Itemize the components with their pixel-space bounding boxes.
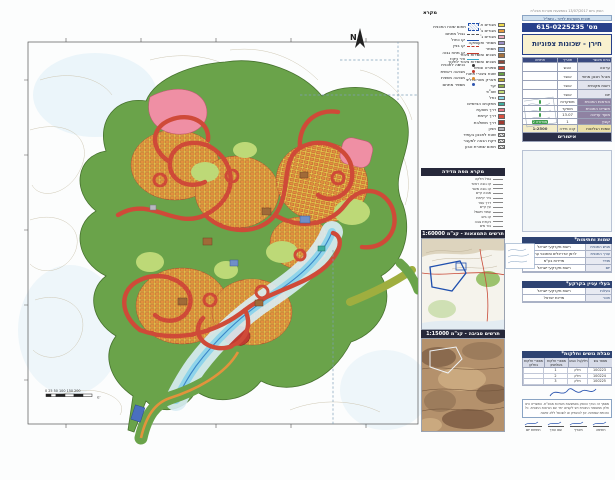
legend-symbol-icon xyxy=(467,53,479,54)
survey-symbol-icon xyxy=(493,193,503,194)
approval-row-status: אושר xyxy=(557,72,577,80)
signature-row-label: מודד xyxy=(585,258,611,264)
approval-row-status: אושר xyxy=(557,90,577,98)
water-wash-3 xyxy=(340,350,430,430)
stakeholder-row-value: מדינת ישראל xyxy=(523,295,585,301)
legend-symbol-icon xyxy=(467,70,479,73)
legend-item-label: מבואה משנית xyxy=(441,76,465,80)
footer-signature-label: תאריך xyxy=(567,428,590,432)
parcels-panel: טבלת גושים וחלקות* מספר גוש חלק/כל הגוש … xyxy=(522,351,612,386)
col-full-parcels: מספרי חלקות בשלמותן xyxy=(544,358,568,367)
legend-item-label: נחל xyxy=(489,96,496,100)
civic-blue-block-2 xyxy=(230,260,238,266)
survey-symbol-icon xyxy=(493,226,503,227)
civic-blue-block xyxy=(300,216,310,223)
legend-symbol-icon xyxy=(467,77,479,80)
legend-symbol-icon xyxy=(467,59,479,60)
approval-row-label: רשות מקומית xyxy=(577,81,611,89)
col-signature: חתימה xyxy=(523,58,557,62)
survey-item-label: קו גובה משני xyxy=(472,187,491,191)
legend-item-label: מספר מתחם xyxy=(443,83,465,87)
parcel-partial xyxy=(523,374,543,379)
deposit-row-value: 13.07 xyxy=(557,112,577,118)
legend-symbol-icon xyxy=(467,46,479,47)
approval-row: מנהל תכנון מחוזי אושר xyxy=(523,72,611,81)
legend-item-label: תחום שטח התכנית xyxy=(433,25,466,29)
legend-color-chip xyxy=(498,127,505,131)
legend-color-chip xyxy=(498,120,505,124)
survey-symbol-icon xyxy=(493,207,503,208)
legend-symbol-icon xyxy=(467,34,479,35)
legend-symbol-icon xyxy=(467,40,479,41)
legend-item-label: ציר ניקוז xyxy=(450,57,465,61)
footer-signature-label: חתימה xyxy=(590,428,613,432)
signature-row-label: עורך התכנית xyxy=(585,251,611,257)
orientation-map xyxy=(421,238,505,330)
approval-row-status: הוגש xyxy=(557,63,577,71)
sheets-label: שמות הגליונות xyxy=(577,125,611,132)
legend-color-chip xyxy=(498,47,505,51)
stakeholder-row-label: חוכר xyxy=(585,295,611,301)
legend-item-label: דרך מוצעת xyxy=(476,108,496,112)
footer-signature-label: חתימת יזם xyxy=(522,428,545,432)
survey-legend-header: מקרא מפת מדידה xyxy=(421,168,505,176)
svg-text:מ': מ' xyxy=(97,396,100,400)
parcel-part: חלק xyxy=(567,379,587,384)
survey-symbol-icon xyxy=(493,202,503,203)
legend-item-label: תחום שמורת טבע xyxy=(465,145,496,149)
survey-symbol-icon xyxy=(493,216,503,217)
signature-row: מודד מדידות בע"מ xyxy=(523,258,611,265)
survey-item-label: מבנה קיים xyxy=(476,191,491,195)
legend-item-label: מגורים ג' xyxy=(480,35,496,39)
footer-signature-cell: תאריך xyxy=(567,419,590,432)
legend-color-chip xyxy=(498,96,505,100)
survey-item-label: גדר קיימת xyxy=(476,196,491,200)
legend-symbol-icon xyxy=(467,83,479,86)
orientation-diagram-panel: תרשים התמצאות - קנ"מ 1:60000 xyxy=(421,230,505,330)
approval-row-label: יזם xyxy=(577,90,611,98)
plan-name-box: חירן - שכונות צפוניות xyxy=(522,34,612,55)
col-block: מספר גוש xyxy=(588,358,612,367)
deposit-row-label: הוראות התכנית xyxy=(577,99,611,105)
legend-item: תחום שמורת טבע xyxy=(457,144,505,150)
signature-row-label: יזם xyxy=(585,265,611,271)
survey-symbol-icon xyxy=(493,188,503,189)
scale-label: קנה מידה xyxy=(557,125,577,132)
approval-row: ערוכה הוגש xyxy=(523,63,611,72)
parcel-block: 100224 xyxy=(587,374,611,379)
approvals-bar: אישורים xyxy=(523,133,611,141)
legend-title: מקרא xyxy=(421,10,505,16)
legend-panel: מקרא מגורים א' מגורים ב' מגורים ג' מסחר … xyxy=(421,10,505,16)
stakeholder-row-value: רשות מקרקעי ישראל xyxy=(523,288,585,294)
legend-color-chip xyxy=(498,133,505,137)
signature-row: עורך התכנית לרמן אדריכלים ומתכנני ערים xyxy=(523,251,611,258)
legend-item-label: קו מתח גבוה xyxy=(442,51,465,55)
legend-color-chip xyxy=(498,114,505,118)
legend-color-chip xyxy=(498,72,505,76)
legend-item-label: יער xyxy=(490,84,496,88)
stakeholder-row: בעלות רשות מקרקעי ישראל xyxy=(523,288,611,295)
legend-item-label: גבול מתחם xyxy=(445,32,465,36)
col-part: חלק/כל הגוש xyxy=(568,358,588,367)
survey-symbol-icon xyxy=(493,212,503,213)
approval-row-label: מנהל תכנון מחוזי xyxy=(577,72,611,80)
legend-item-label: מבואה ראשית xyxy=(440,70,465,74)
legend-item-label: מסחר xyxy=(486,47,496,51)
signatures-header: שמות וחתימות* xyxy=(522,237,612,244)
deposit-row-value: מופקדות xyxy=(557,99,577,105)
plan-boundary-icon xyxy=(468,23,479,31)
footer-signature-cell: חתימת יזם xyxy=(522,419,545,432)
plan-map: N 0 25 50 100 150 200 מ' xyxy=(0,0,430,480)
parcel-full: 2 xyxy=(543,374,567,379)
deposit-row-value: 1 xyxy=(557,119,577,125)
survey-item-label: קו גובה ראשי xyxy=(472,182,491,186)
parcel-block: 100223 xyxy=(587,368,611,373)
legend-item-label: דרך משולבת xyxy=(474,121,496,125)
orientation-header: תרשים התמצאות - קנ"מ 1:60000 xyxy=(421,230,505,238)
footer-signature-cell: שם עורך xyxy=(545,419,568,432)
survey-item-label: בור מים xyxy=(480,224,491,228)
parcels-header: טבלת גושים וחלקות* xyxy=(522,351,612,358)
legend-item-label: קו כחול xyxy=(451,38,465,42)
col-partial-parcels: מספרי חלקות בחלקן xyxy=(522,358,544,367)
footer-signature-row: חתימה תאריך שם עורך חתימת יזם xyxy=(522,419,612,432)
footer-signature-cell: חתימה xyxy=(590,419,613,432)
environment-aerial-map xyxy=(421,338,505,432)
legend-color-chip xyxy=(498,102,505,106)
survey-item-label: קו ביוב xyxy=(481,215,491,219)
print-meta-line: הופק ביום 13/07/2017 באמצעות מערכת מבא"ת xyxy=(522,9,612,13)
survey-item-label: גבול חלקה xyxy=(475,177,491,181)
legend-color-chip xyxy=(498,78,505,82)
stakeholder-row: חוכר מדינת ישראל xyxy=(523,295,611,302)
legend-color-chip xyxy=(498,29,505,33)
environment-header: תרשים סביבה - קנ"מ 1:15000 xyxy=(421,330,505,338)
parcel-full: 1 xyxy=(543,368,567,373)
legend-item-label: שצ"פ xyxy=(486,90,496,94)
legend-color-chip xyxy=(498,35,505,39)
deposit-row-value: מופקד xyxy=(557,106,577,112)
approval-row-signature-space xyxy=(523,72,557,80)
approvals-empty-box xyxy=(522,150,612,232)
deposit-row-label: קובץ xyxy=(577,119,611,125)
parcel-full: 3 xyxy=(543,379,567,384)
signatures-panel: שמות וחתימות* מגיש התכנית רשות מקרקעי יש… xyxy=(522,237,612,273)
stakeholder-row-label: בעלות xyxy=(585,288,611,294)
engineering-block xyxy=(318,246,325,251)
environment-diagram-panel: תרשים סביבה - קנ"מ 1:15000 xyxy=(421,330,505,432)
legend-item-label: מתקנים הנדסיים xyxy=(467,102,496,106)
deposit-row-label: מועד עריכה xyxy=(577,112,611,118)
legend-color-chip xyxy=(498,139,505,143)
signature-row: מגיש התכנית רשות מקרקעי ישראל xyxy=(523,244,611,251)
legend-item-label: שטח לתכנון בעתיד xyxy=(463,133,496,137)
north-arrow: N xyxy=(350,28,365,48)
survey-item-label: נקודת גובה xyxy=(475,220,491,224)
svg-text:0 25 50 100 150 20: 0 25 50 100 150 200 xyxy=(45,389,81,393)
handwritten-signature xyxy=(548,385,598,399)
legend-item-label: קו בניין xyxy=(453,44,465,48)
legend-item-label: חניון xyxy=(489,127,496,131)
signature-row: יזם רשות מקרקעי ישראל xyxy=(523,265,611,272)
scanned-plan-sheet: { "doc": { "meta_line": "הופק ביום 13/07… xyxy=(0,0,615,480)
stamp-scribble xyxy=(524,85,560,133)
parcel-partial xyxy=(523,368,543,373)
deposit-row-label: תשריט התכנית xyxy=(577,106,611,112)
legend-symbols: תחום שטח התכנית גבול מתחם קו כחול קו בני… xyxy=(421,24,479,88)
approval-row-signature-space xyxy=(523,63,557,71)
survey-item-label: עמוד חשמל xyxy=(474,210,491,214)
plan-type-strip: תכנית מועדפת לדיור - ותמ"ל xyxy=(522,15,612,21)
approval-row-label: ערוכה xyxy=(577,63,611,71)
legend-item-label: זיקת הנאה למעבר xyxy=(463,139,496,143)
svg-text:N: N xyxy=(350,33,357,42)
parcel-part: חלק xyxy=(567,374,587,379)
legend-item-label: מגורים א' xyxy=(479,23,496,27)
survey-item-label: דרך עפר xyxy=(478,201,491,205)
legend-color-chip xyxy=(498,84,505,88)
parcels-columns: מספר גוש חלק/כל הגוש מספרי חלקות בשלמותן… xyxy=(522,358,612,368)
parcel-partial xyxy=(523,379,543,384)
stakeholders-panel: בעלי עניין בקרקע* בעלות רשות מקרקעי ישרא… xyxy=(522,281,612,303)
legend-color-chip xyxy=(498,53,505,57)
parcel-block: 100225 xyxy=(587,379,611,384)
legend-symbol-item: מספר מתחם xyxy=(421,82,479,88)
legend-color-chip xyxy=(498,66,505,70)
parcel-part: חלק xyxy=(567,368,587,373)
col-date: תאריך xyxy=(557,58,577,62)
legend-color-chip xyxy=(498,90,505,94)
parking-block xyxy=(150,205,156,210)
approval-row-status: אושר xyxy=(557,81,577,89)
legend-item-label: כניסה לתכנית xyxy=(441,63,465,67)
survey-legend-panel: מקרא מפת מדידה גבול חלקה קו גובה ראשי קו… xyxy=(421,168,505,234)
survey-symbol-icon xyxy=(493,221,503,222)
col-approver: גורם מאשר xyxy=(577,58,611,62)
stakeholders-header: בעלי עניין בקרקע* xyxy=(522,281,612,288)
survey-symbol-icon xyxy=(493,184,503,185)
legend-color-chip xyxy=(498,108,505,112)
legend-color-chip xyxy=(498,41,505,45)
legend-color-chip xyxy=(498,60,505,64)
legend-color-chip xyxy=(498,145,505,149)
survey-symbol-icon xyxy=(493,198,503,199)
legend-symbol-icon xyxy=(467,64,479,67)
stamp-box-sketch xyxy=(505,243,535,269)
parcel-row: 100225 חלק 3 xyxy=(523,379,611,385)
footer-note: מסמך זה נערך והופק באמצעות מערכת מבא"ת. … xyxy=(522,399,612,418)
plan-number-bar: מס' 615-0225235 xyxy=(522,23,612,32)
survey-item-label: עץ קיים xyxy=(480,205,491,209)
signature-row-label: מגיש התכנית xyxy=(585,244,611,250)
legend-item-label: דרך קיימת xyxy=(478,114,496,118)
survey-symbol-icon xyxy=(493,179,503,180)
legend-color-chip xyxy=(498,23,505,27)
legend-item-label: מגורים ב' xyxy=(480,29,496,33)
footer-signature-label: שם עורך xyxy=(545,428,568,432)
